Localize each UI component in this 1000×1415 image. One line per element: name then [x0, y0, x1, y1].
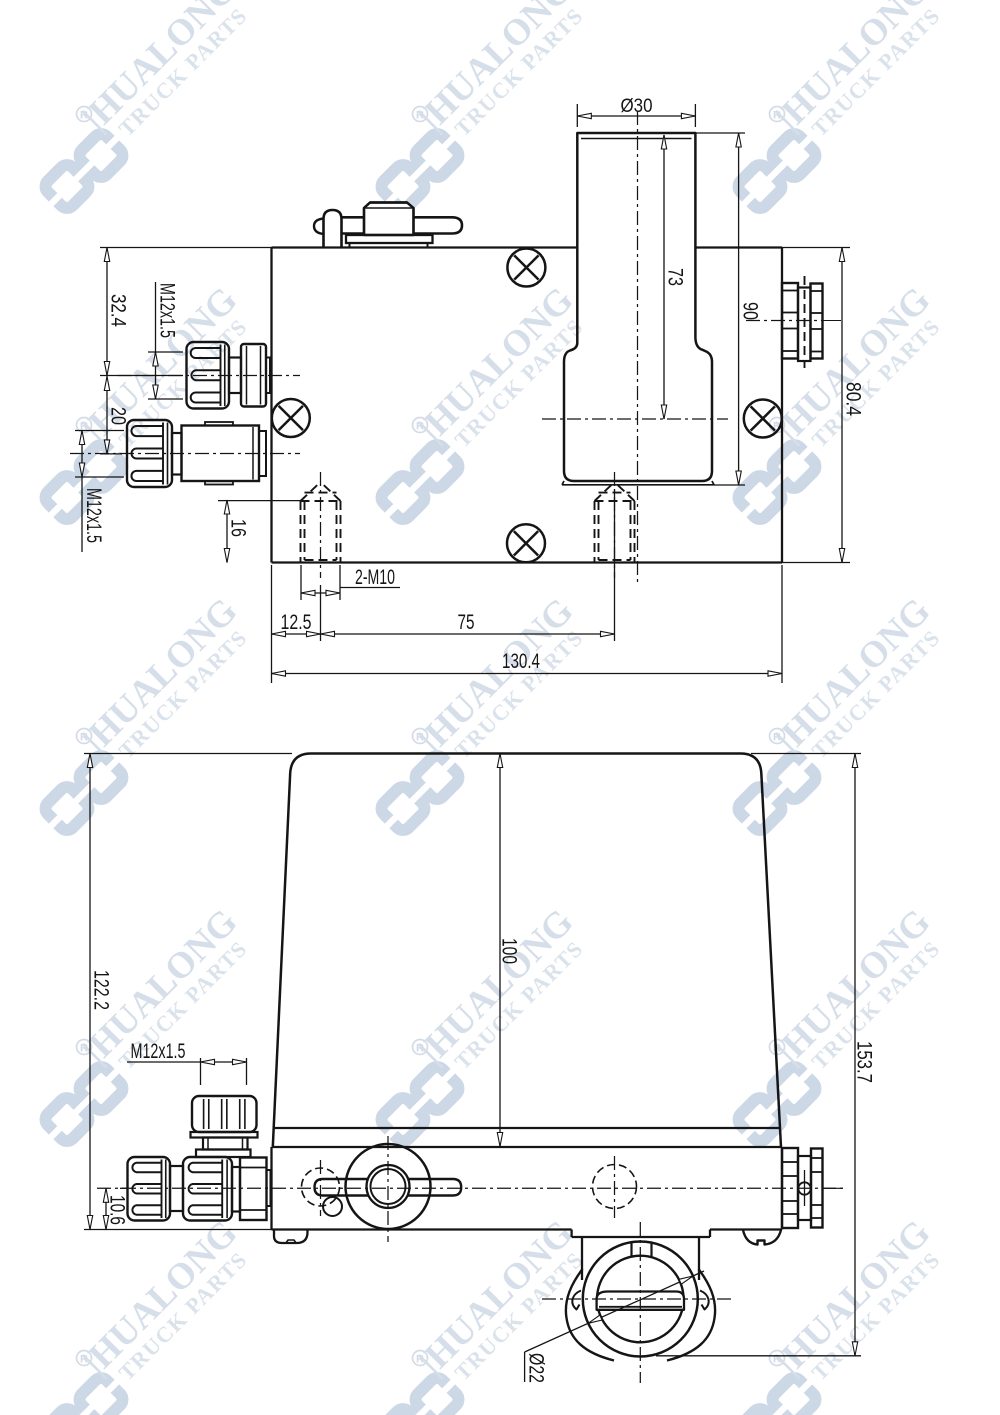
svg-text:M12x1.5: M12x1.5: [82, 488, 105, 543]
svg-text:122.2: 122.2: [90, 970, 113, 1010]
svg-text:2-M10: 2-M10: [355, 566, 395, 589]
svg-text:73: 73: [664, 268, 687, 286]
svg-text:Ø30: Ø30: [621, 96, 653, 117]
svg-text:100: 100: [498, 938, 521, 964]
svg-text:M12x1.5: M12x1.5: [131, 1040, 186, 1063]
svg-text:10.6: 10.6: [106, 1195, 129, 1225]
svg-text:90: 90: [738, 302, 761, 320]
svg-text:12.5: 12.5: [281, 611, 312, 634]
svg-text:130.4: 130.4: [502, 650, 540, 673]
svg-text:75: 75: [458, 611, 475, 634]
svg-text:20: 20: [107, 407, 130, 425]
svg-text:16: 16: [227, 519, 250, 537]
svg-text:153.7: 153.7: [853, 1041, 876, 1083]
svg-text:Ø22: Ø22: [524, 1353, 547, 1383]
svg-text:M12x1.5: M12x1.5: [155, 283, 178, 338]
svg-text:80.4: 80.4: [842, 382, 865, 416]
svg-text:32.4: 32.4: [107, 294, 130, 327]
